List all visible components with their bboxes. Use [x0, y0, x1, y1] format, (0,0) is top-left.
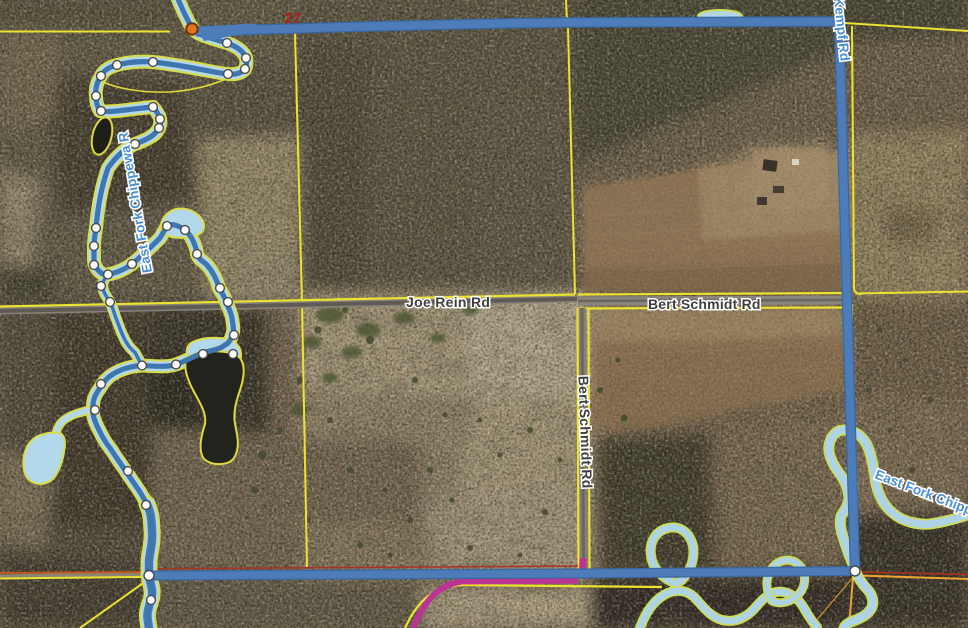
- svg-text:27: 27: [284, 10, 301, 27]
- svg-text:Joe Rein Rd: Joe Rein Rd: [406, 294, 490, 310]
- svg-text:Bert Schmidt Rd: Bert Schmidt Rd: [648, 296, 761, 312]
